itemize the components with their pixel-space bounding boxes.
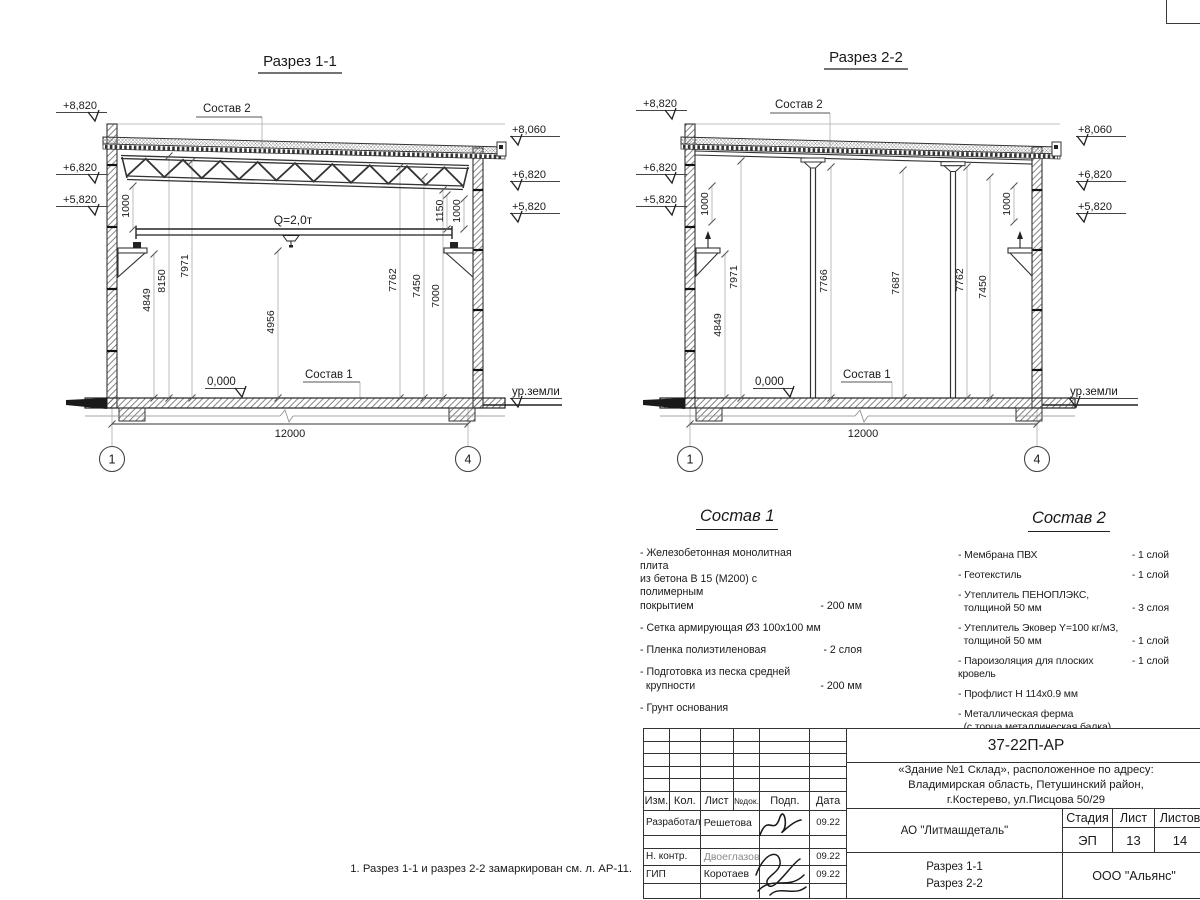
axis-bubbles: 1 4 xyxy=(678,447,1050,472)
section-1-1-drawing: Разрез 1-1 xyxy=(56,53,562,472)
list-item: - Утеплитель ПЕНОПЛЭКС, толщиной 50 мм -… xyxy=(958,589,1169,615)
crane-beam: Q=2,0т xyxy=(136,213,452,248)
sostav2-list: Состав 2 - Мембрана ПВХ - 1 слой - Геоте… xyxy=(958,508,1169,741)
sostav1-title: Состав 1 xyxy=(696,506,778,530)
vertical-dimensions: 4849 7971 7766 7687 7762 7450 1000 1000 xyxy=(699,192,1013,337)
dim-label: 1000 xyxy=(1001,192,1013,216)
sostav2-callout: Состав 2 xyxy=(775,99,823,111)
layer-name: - Утеплитель ПЕНОПЛЭКС, толщиной 50 мм xyxy=(958,589,1089,615)
axis-bubbles: 1 4 xyxy=(100,447,481,472)
dim-label: 1000 xyxy=(699,192,711,216)
axis-bubble-label: 1 xyxy=(109,453,116,467)
sheet-note: 1. Разрез 1-1 и разрез 2-2 замаркирован … xyxy=(336,863,632,875)
section-1-1-title: Разрез 1-1 xyxy=(263,53,337,70)
dim-label: 7687 xyxy=(890,271,902,295)
section-2-2-roof xyxy=(681,137,1061,164)
section-1-1-roof xyxy=(103,137,506,159)
elevation-marks-left: +8,820 +6,820 +5,820 xyxy=(636,98,687,215)
dim-label: 7000 xyxy=(430,284,442,308)
table-row xyxy=(644,836,846,849)
crane-capacity-label: Q=2,0т xyxy=(274,213,313,227)
list-item: - Профлист Н 114x0.9 мм xyxy=(958,688,1169,701)
col-podp: Подп. xyxy=(760,792,810,810)
elevation-label: +5,820 xyxy=(643,194,677,206)
table-row xyxy=(644,884,846,899)
elevation-label: +6,820 xyxy=(1078,169,1112,181)
sostav1-list: Состав 1 - Железобетонная монолитная пли… xyxy=(640,506,862,724)
layer-value: - 1 слой xyxy=(1132,549,1169,562)
customer-company: АО "Литмашдеталь" xyxy=(847,809,1063,852)
elevation-label: +5,820 xyxy=(63,194,97,206)
date-cell: 09.22 xyxy=(810,849,846,865)
section-1-1-walls xyxy=(107,124,483,408)
drawing-sheet: Разрез 1-1 xyxy=(0,0,1200,900)
sheet-value: 13 xyxy=(1113,828,1155,852)
floor-slab xyxy=(66,398,562,422)
sheets-header: Листов xyxy=(1155,809,1200,827)
elevation-label: +6,820 xyxy=(512,169,546,181)
sostav1-callout: Состав 1 xyxy=(305,369,353,381)
elevation-label: +8,060 xyxy=(1078,124,1112,136)
ground-level-label: ур.земли xyxy=(512,386,560,398)
dim-label: 7450 xyxy=(411,274,423,298)
dim-label: 1000 xyxy=(451,199,463,223)
layer-value: - 2 слоя xyxy=(823,644,862,657)
col-izm: Изм. xyxy=(644,792,670,810)
crane-corbels xyxy=(696,231,1032,276)
list-item: - Железобетонная монолитная плита из бет… xyxy=(640,547,862,613)
axis-bubble-label: 4 xyxy=(1034,453,1041,467)
col-date: Дата xyxy=(810,792,846,810)
table-row: Разработал Решетова 09.22 xyxy=(644,811,846,836)
layer-name: - Грунт основания xyxy=(640,702,728,715)
dim-label: 7971 xyxy=(179,254,191,278)
col-list: Лист xyxy=(701,792,734,810)
list-item: - Подготовка из песка средней крупности … xyxy=(640,666,862,692)
list-item: - Геотекстиль - 1 слой xyxy=(958,569,1169,582)
date-cell: 09.22 xyxy=(810,811,846,835)
stage-grid: Стадия Лист Листов ЭП 13 14 xyxy=(1063,809,1200,852)
document-number: 37-22П-АР xyxy=(847,729,1200,763)
section-2-2-drawing: Разрез 2-2 xyxy=(636,49,1138,472)
crane-corbels xyxy=(118,242,473,277)
col-kol: Кол. xyxy=(670,792,701,810)
span-dim-label: 12000 xyxy=(275,428,306,440)
sheet-content-title: Разрез 1-1 Разрез 2-2 xyxy=(847,853,1063,898)
dim-label: 1000 xyxy=(120,194,132,218)
section-2-2-title: Разрез 2-2 xyxy=(829,49,903,66)
layer-value: - 1 слой xyxy=(1132,635,1169,648)
sections-canvas: Разрез 1-1 xyxy=(0,0,1200,500)
list-item: - Мембрана ПВХ - 1 слой xyxy=(958,549,1169,562)
elevation-label: +8,820 xyxy=(63,100,97,112)
layer-value: - 3 слоя xyxy=(1132,602,1169,615)
date-cell: 09.22 xyxy=(810,866,846,883)
floor-slab xyxy=(643,398,1138,422)
signature-cell xyxy=(760,866,810,883)
role-cell: ГИП xyxy=(644,866,701,883)
layer-name: - Железобетонная монолитная плита из бет… xyxy=(640,547,816,613)
dim-label: 1150 xyxy=(434,200,446,223)
dim-label: 7450 xyxy=(977,275,989,299)
name-cell: Коротаев xyxy=(701,866,761,883)
layer-name: - Пленка полиэтиленовая xyxy=(640,644,766,657)
stage-value: ЭП xyxy=(1063,828,1113,852)
elevation-label: +8,060 xyxy=(512,124,546,136)
dim-label: 7762 xyxy=(387,268,399,292)
role-cell: Н. контр. xyxy=(644,849,701,865)
layer-value: - 1 слой xyxy=(1132,655,1169,681)
axis-bubble-label: 4 xyxy=(465,453,472,467)
col-ndoc: №док. xyxy=(734,792,761,810)
elevation-marks-left: +8,820 +6,820 +5,820 xyxy=(56,100,107,215)
dim-ticks xyxy=(709,158,1018,402)
dim-label: 4849 xyxy=(712,313,724,337)
layer-value: - 1 слой xyxy=(1132,569,1169,582)
elevation-label: +6,820 xyxy=(643,162,677,174)
dim-label: 4849 xyxy=(141,288,153,312)
sostav1-callout: Состав 1 xyxy=(843,369,891,381)
table-row: Н. контр. Двоеглазов 09.22 xyxy=(644,849,846,866)
elevation-label: +6,820 xyxy=(63,162,97,174)
table-row: ГИП Коротаев 09.22 xyxy=(644,866,846,884)
span-dimension: 12000 xyxy=(687,421,1041,441)
dim-label: 4956 xyxy=(265,310,277,334)
layer-value: - 200 мм xyxy=(820,680,862,693)
name-cell: Решетова xyxy=(701,811,761,835)
dim-label: 7762 xyxy=(954,268,966,292)
span-dim-label: 12000 xyxy=(848,428,879,440)
title-block-main: 37-22П-АР «Здание №1 Склад», расположенн… xyxy=(847,729,1200,898)
revision-header-row: Изм. Кол. Лист №док. Подп. Дата xyxy=(644,792,846,811)
title-block-revision-table: Изм. Кол. Лист №док. Подп. Дата Разработ… xyxy=(644,729,847,898)
layer-name: - Пароизоляция для плоских кровель xyxy=(958,655,1128,681)
layer-name: - Подготовка из песка средней крупности xyxy=(640,666,790,692)
span-dimension: 12000 xyxy=(109,421,472,441)
layer-name: - Мембрана ПВХ xyxy=(958,549,1037,562)
zero-level-label: 0,000 xyxy=(207,376,236,388)
layer-value: - 200 мм xyxy=(820,600,862,613)
stage-header: Стадия xyxy=(1063,809,1113,827)
list-item: - Сетка армирующая Ø3 100x100 мм xyxy=(640,622,862,635)
elevation-label: +8,820 xyxy=(643,98,677,110)
layer-name: - Сетка армирующая Ø3 100x100 мм xyxy=(640,622,821,635)
layer-name: - Утеплитель Эковер Y=100 кг/м3, толщино… xyxy=(958,622,1118,648)
elevation-label: +5,820 xyxy=(512,201,546,213)
zero-level-label: 0,000 xyxy=(755,376,784,388)
crane-trolley-icon xyxy=(283,236,299,248)
crane-rail-arrow-icon xyxy=(705,231,1023,248)
sheets-value: 14 xyxy=(1155,828,1200,852)
title-block: Изм. Кол. Лист №док. Подп. Дата Разработ… xyxy=(643,728,1200,899)
elevation-marks-right: +8,060 +6,820 +5,820 xyxy=(510,124,560,222)
layer-name: - Геотекстиль xyxy=(958,569,1022,582)
signature-cell xyxy=(760,811,810,835)
name-cell: Двоеглазов xyxy=(701,849,761,865)
dim-label: 7766 xyxy=(818,269,830,293)
sostav2-title: Состав 2 xyxy=(1028,508,1110,532)
design-organization: ООО "Альянс" xyxy=(1063,853,1200,898)
project-address: «Здание №1 Склад», расположенное по адре… xyxy=(847,763,1200,809)
list-item: - Пленка полиэтиленовая - 2 слоя xyxy=(640,644,862,657)
roof-truss xyxy=(121,156,469,190)
role-cell: Разработал xyxy=(644,811,701,835)
list-item: - Грунт основания xyxy=(640,702,862,715)
elevation-label: +5,820 xyxy=(1078,201,1112,213)
sostav2-callout: Состав 2 xyxy=(203,103,251,115)
layer-name: - Профлист Н 114x0.9 мм xyxy=(958,688,1078,701)
dim-label: 7971 xyxy=(728,265,740,289)
list-item: - Утеплитель Эковер Y=100 кг/м3, толщино… xyxy=(958,622,1169,648)
list-item: - Пароизоляция для плоских кровель - 1 с… xyxy=(958,655,1169,681)
elevation-marks-right: +8,060 +6,820 +5,820 xyxy=(1076,124,1126,222)
sheet-header: Лист xyxy=(1113,809,1155,827)
ground-level-label: ур.земли xyxy=(1070,386,1118,398)
signature-cell xyxy=(760,849,810,865)
dim-label: 8150 xyxy=(156,269,168,293)
axis-bubble-label: 1 xyxy=(687,453,694,467)
